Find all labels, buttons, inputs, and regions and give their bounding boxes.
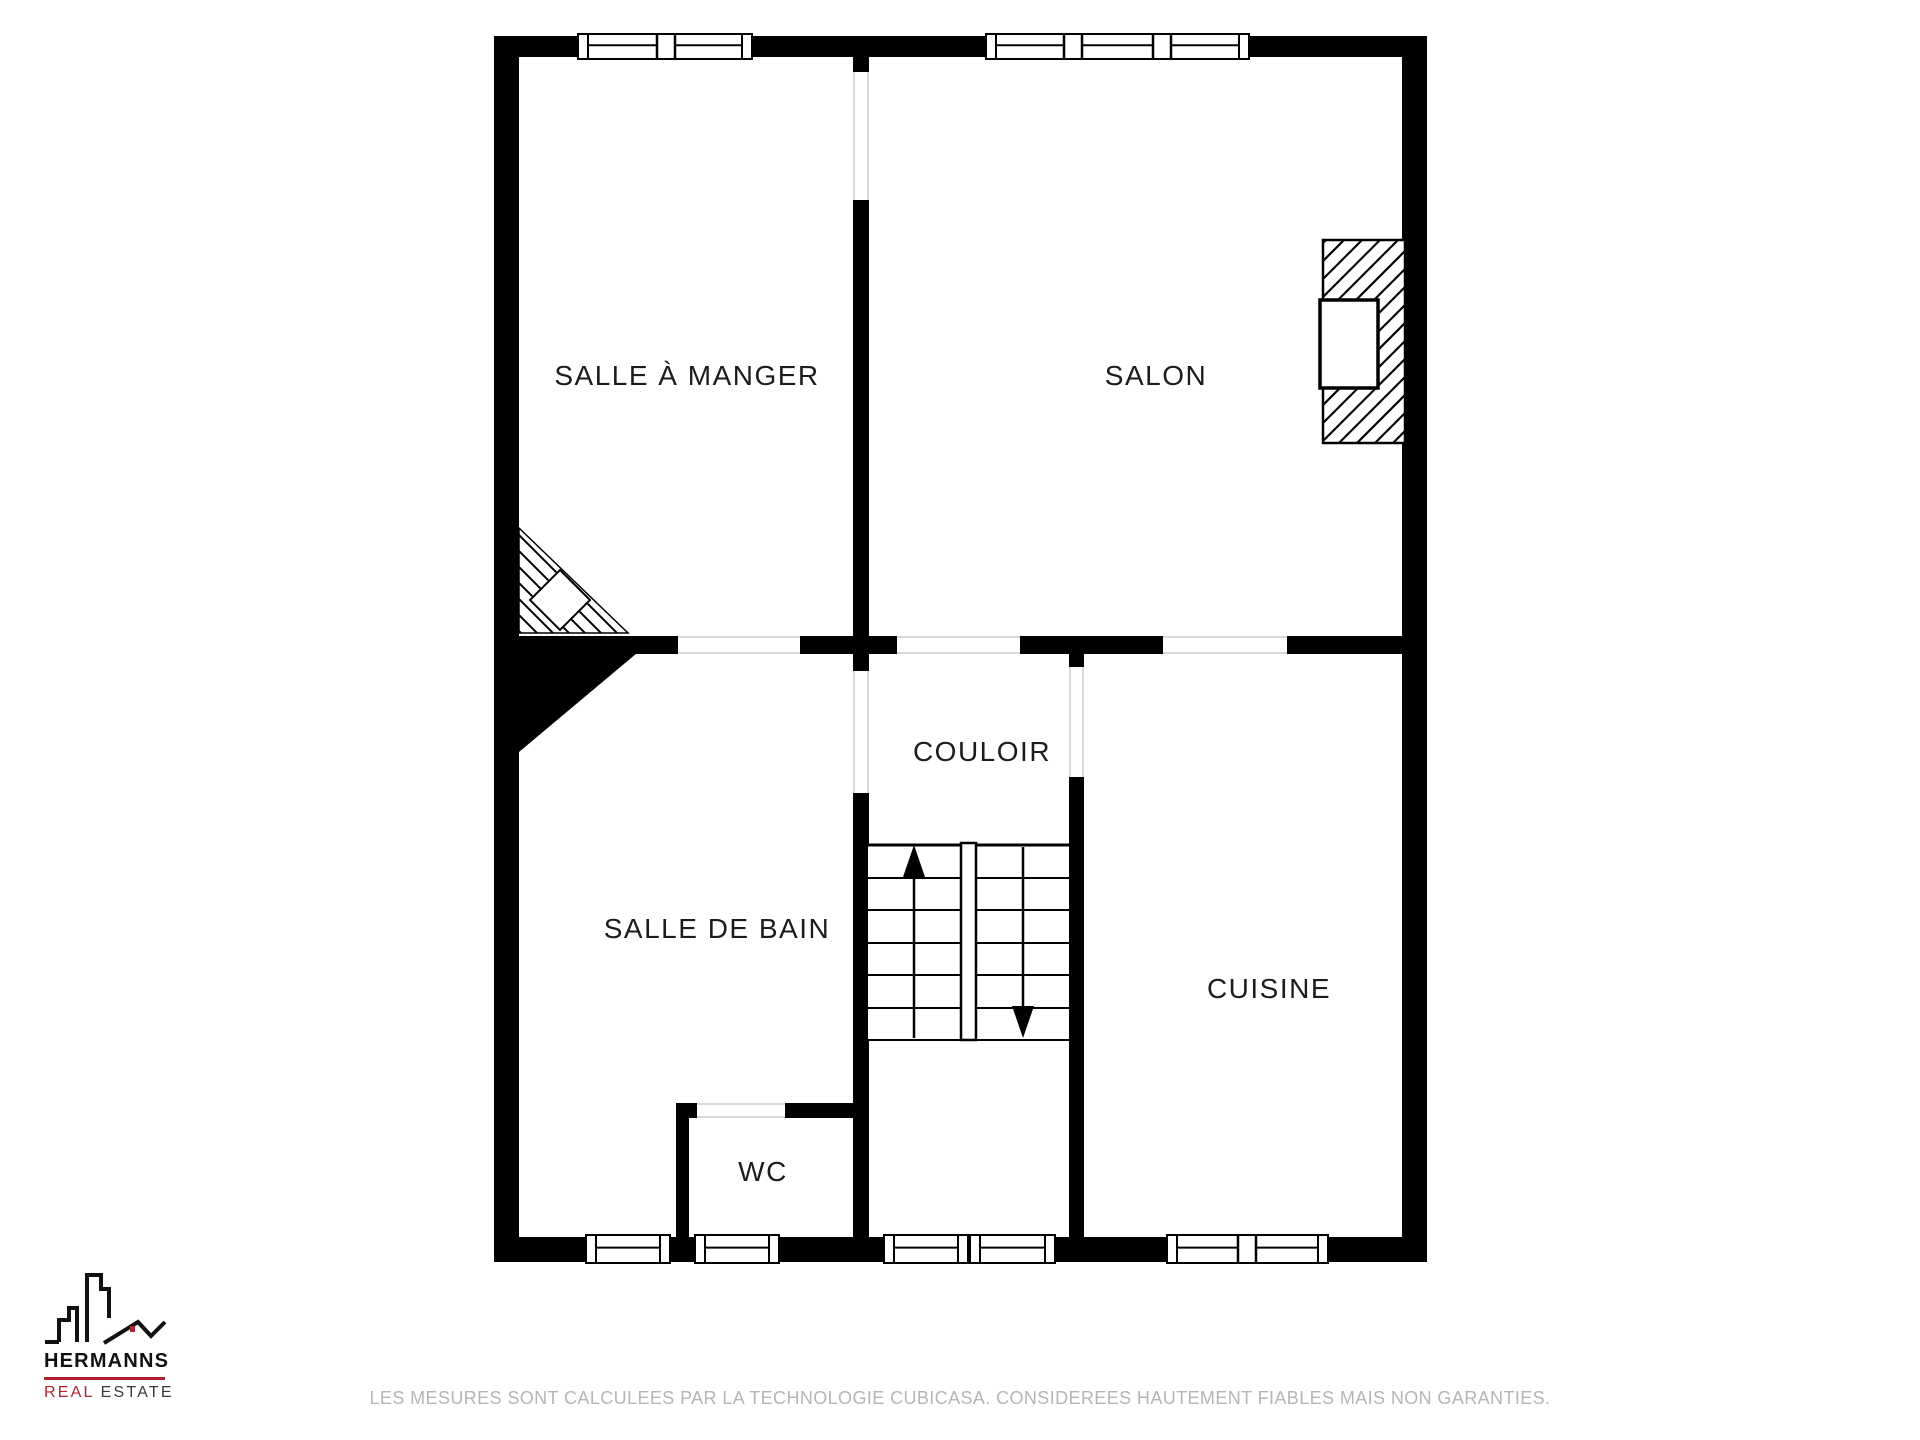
door-opening bbox=[1069, 667, 1084, 777]
window-icon bbox=[578, 34, 752, 59]
wall bbox=[1069, 654, 1084, 667]
door-opening bbox=[853, 671, 869, 793]
window-icon bbox=[695, 1235, 779, 1263]
understair-fill bbox=[519, 648, 643, 752]
wall bbox=[785, 1103, 869, 1118]
wall bbox=[1287, 636, 1402, 654]
wall bbox=[676, 1103, 689, 1237]
window-icon bbox=[884, 1235, 968, 1263]
floor-plan-drawing bbox=[0, 0, 1920, 1440]
wall bbox=[494, 36, 519, 1262]
door-opening bbox=[697, 1103, 785, 1118]
window-icon bbox=[970, 1235, 1055, 1263]
door-opening bbox=[678, 636, 800, 654]
wall bbox=[800, 636, 897, 654]
window-icon bbox=[1167, 1235, 1328, 1263]
wall bbox=[853, 793, 869, 1237]
agency-logo: HERMANNS REAL ESTATE bbox=[44, 1268, 176, 1402]
fireplace-icon bbox=[1320, 240, 1405, 443]
window-icon bbox=[986, 34, 1249, 59]
door-opening bbox=[1163, 636, 1287, 654]
door-opening bbox=[897, 636, 1020, 654]
staircase-icon bbox=[868, 843, 1069, 1040]
stair-divider bbox=[961, 843, 976, 1040]
wall bbox=[1069, 777, 1084, 1237]
door-opening bbox=[853, 72, 869, 200]
agency-name: HERMANNS bbox=[44, 1350, 176, 1373]
wall bbox=[853, 654, 869, 671]
measurement-disclaimer: LES MESURES SONT CALCULEES PAR LA TECHNO… bbox=[0, 1388, 1920, 1409]
wall bbox=[1402, 36, 1427, 1262]
wall bbox=[853, 57, 869, 72]
window-icon bbox=[586, 1235, 670, 1263]
logo-divider bbox=[44, 1377, 165, 1380]
understair-void bbox=[519, 648, 643, 752]
agency-logo-skyline-icon bbox=[44, 1268, 172, 1346]
floor-plan: SALLE À MANGERSALONCOULOIRSALLE DE BAINC… bbox=[0, 0, 1920, 1440]
winder-stairs-icon bbox=[519, 528, 628, 633]
wall bbox=[853, 200, 869, 654]
fireplace-notch bbox=[1320, 300, 1378, 388]
logo-red-chimney bbox=[130, 1326, 135, 1332]
wall bbox=[1020, 636, 1163, 654]
